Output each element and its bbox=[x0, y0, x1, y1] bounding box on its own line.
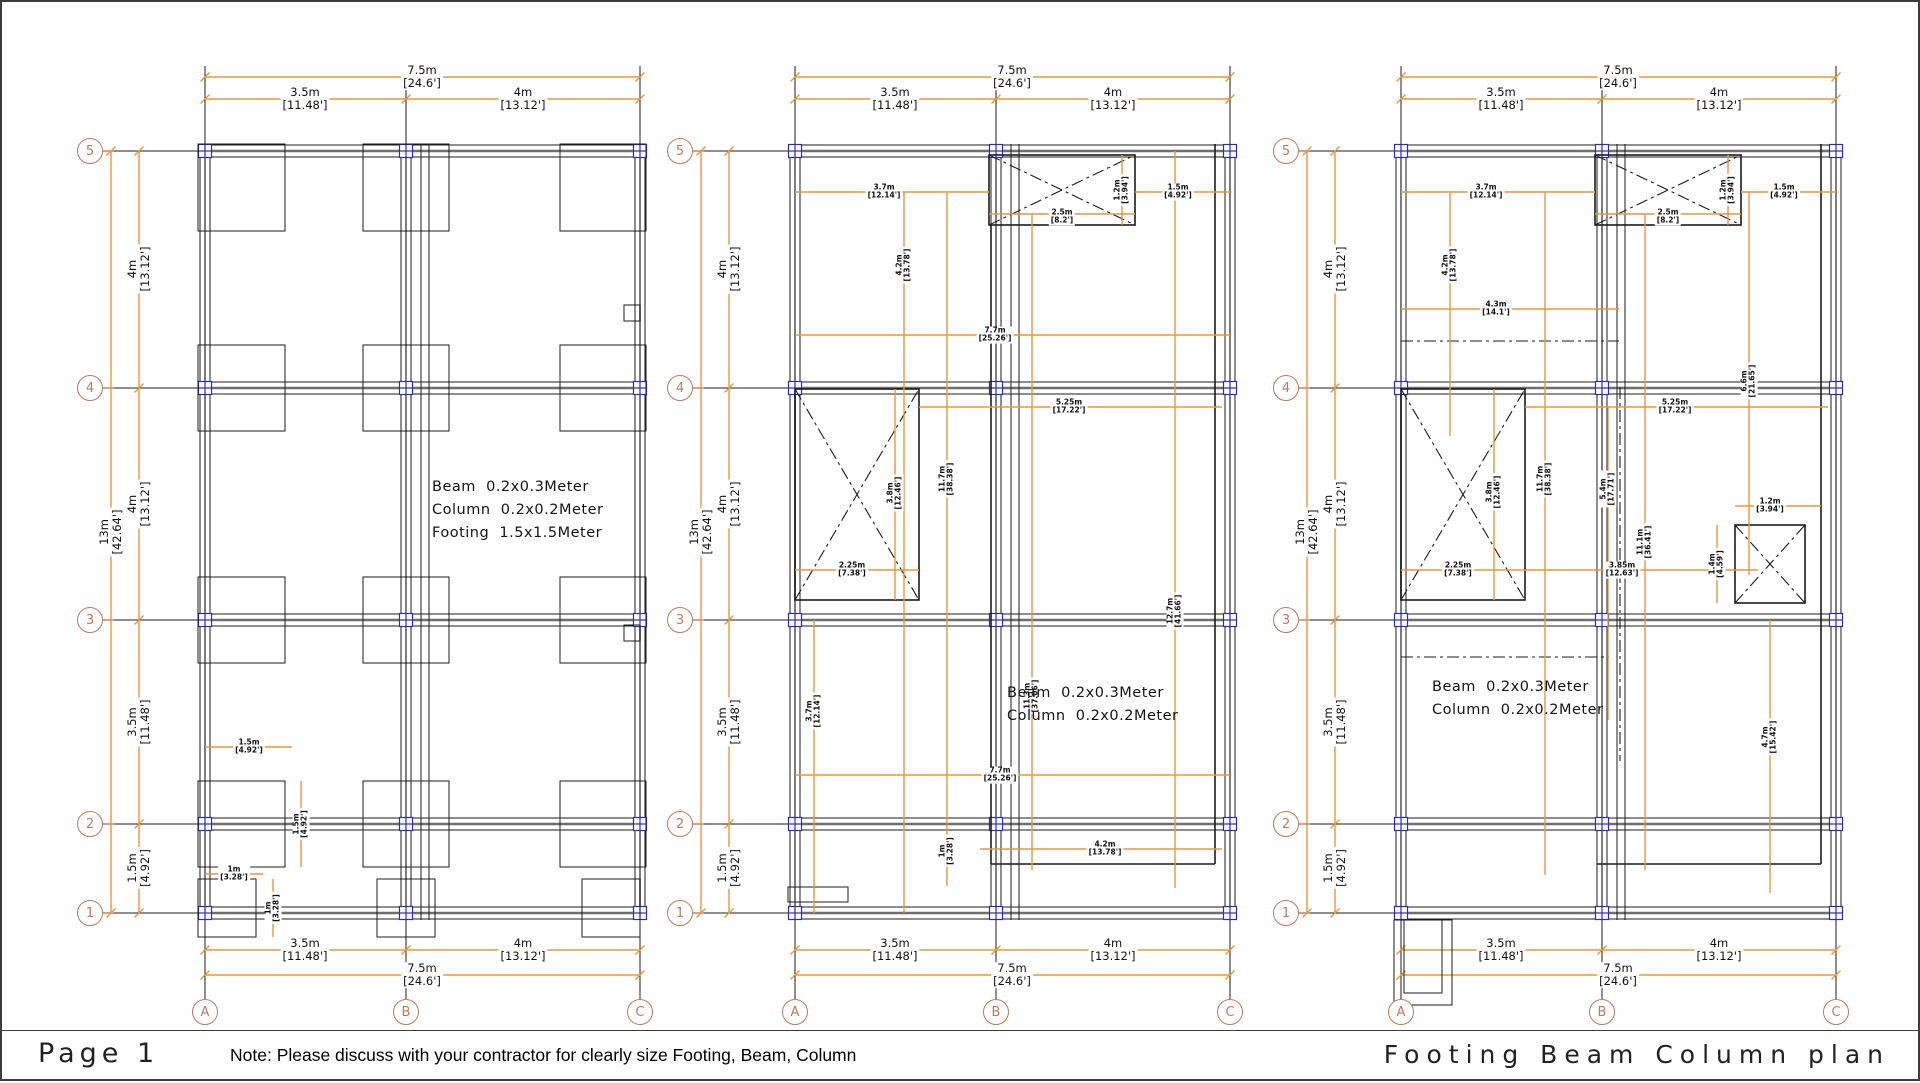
small-opening-x bbox=[1735, 525, 1805, 603]
dimension-label: 4.2m[13.78'] bbox=[896, 247, 913, 284]
grid-bubble-row-3: 3 bbox=[667, 607, 693, 633]
beam-plan-1-linework bbox=[691, 66, 1237, 1000]
dimension-label: 3.7m[12.14'] bbox=[1468, 184, 1505, 201]
dimension-label: 7.7m[25.26'] bbox=[982, 767, 1019, 784]
dimension-label: 4.3m[14.1'] bbox=[1480, 301, 1512, 318]
dimension-label: 4m[13.12'] bbox=[716, 244, 742, 293]
dimension-label: 1.2m[3.94'] bbox=[1754, 498, 1786, 515]
grid-bubble-row-4: 4 bbox=[667, 375, 693, 401]
dimension-label: 4m[13.12'] bbox=[498, 86, 547, 112]
grid-bubble-row-2: 2 bbox=[667, 811, 693, 837]
grid-bubble-col-b: B bbox=[1589, 999, 1615, 1025]
grid-bubble-col-a: A bbox=[192, 999, 218, 1025]
dimension-label: 3.8m[12.46'] bbox=[887, 475, 904, 512]
dimension-label: 3.5m[11.48'] bbox=[1476, 937, 1525, 963]
dimension-label: 3.7m[12.14'] bbox=[866, 184, 903, 201]
dimension-label: 1.5m[4.92'] bbox=[716, 847, 742, 889]
dimension-label: 4m[13.12'] bbox=[498, 937, 547, 963]
contractor-note: Note: Please discuss with your contracto… bbox=[230, 1045, 856, 1066]
dimension-label: 4m[13.12'] bbox=[1694, 86, 1743, 112]
dimension-label: 4.7m[15.42'] bbox=[1762, 719, 1779, 756]
plan-linework bbox=[2, 2, 1920, 1083]
page-number: Page 1 bbox=[38, 1038, 159, 1069]
size-note: Beam 0.2x0.3Meter Column 0.2x0.2Meter bbox=[1007, 682, 1178, 728]
grid-bubble-col-c: C bbox=[627, 999, 653, 1025]
dimension-label: 3.5m[11.48'] bbox=[870, 937, 919, 963]
grid-bubble-row-4: 4 bbox=[77, 375, 103, 401]
dimension-label: 1.5m[4.92'] bbox=[233, 739, 265, 756]
drawing-sheet: 5 4 3 2 1 A B C 7.5m[24.6'] 3.5m[11.48']… bbox=[0, 0, 1920, 1081]
dimension-label: 12.7m[41.66'] bbox=[1167, 593, 1184, 630]
grid-bubble-col-a: A bbox=[782, 999, 808, 1025]
grid-bubble-row-3: 3 bbox=[77, 607, 103, 633]
size-note: Beam 0.2x0.3Meter Column 0.2x0.2Meter Fo… bbox=[432, 476, 603, 545]
beam-plan-2-linework bbox=[1297, 66, 1843, 1005]
grid-bubble-col-b: B bbox=[983, 999, 1009, 1025]
dimension-label: 3.7m[12.14'] bbox=[806, 693, 823, 730]
dimension-label: 1.2m[3.94'] bbox=[1114, 174, 1131, 206]
dimension-label: 7.5m[24.6'] bbox=[1597, 962, 1639, 988]
dimension-label: 11.7m[38.38'] bbox=[939, 461, 956, 498]
dimension-label: 4.2m[13.78'] bbox=[1442, 247, 1459, 284]
grid-bubble-row-2: 2 bbox=[1273, 811, 1299, 837]
dimension-label: 2.25m[7.38'] bbox=[1442, 562, 1474, 579]
dimension-label: 3.5m[11.48'] bbox=[716, 697, 742, 746]
dimension-label: 3.5m[11.48'] bbox=[1476, 86, 1525, 112]
dimension-label: 5.25m[17.22'] bbox=[1657, 399, 1694, 416]
grid-bubble-row-1: 1 bbox=[1273, 900, 1299, 926]
dimension-label: 6.6m[21.65'] bbox=[1741, 363, 1758, 400]
dimension-label: 1m[3.28'] bbox=[939, 835, 956, 867]
size-note: Beam 0.2x0.3Meter Column 0.2x0.2Meter bbox=[1432, 676, 1603, 722]
dimension-label: 4m[13.12'] bbox=[1694, 937, 1743, 963]
dimension-label: 7.5m[24.6'] bbox=[1597, 64, 1639, 90]
grid-bubble-row-1: 1 bbox=[77, 900, 103, 926]
dimension-label: 1.5m[4.92'] bbox=[293, 808, 310, 840]
dimension-label: 13m[42.64'] bbox=[98, 507, 124, 556]
dimension-label: 3.5m[11.48'] bbox=[1322, 697, 1348, 746]
dimension-label: 2.5m[8.2'] bbox=[1655, 209, 1681, 226]
grid-bubble-row-5: 5 bbox=[1273, 138, 1299, 164]
dimension-label: 7.5m[24.6'] bbox=[401, 64, 443, 90]
grid-bubble-row-5: 5 bbox=[667, 138, 693, 164]
dimension-label: 13m[42.64'] bbox=[688, 507, 714, 556]
dimension-label: 1m[3.28'] bbox=[218, 866, 250, 883]
dimension-label: 4m[13.12'] bbox=[126, 244, 152, 293]
grid-bubble-row-5: 5 bbox=[77, 138, 103, 164]
dimension-label: 3.8m[12.46'] bbox=[1486, 474, 1503, 511]
grid-bubble-row-1: 1 bbox=[667, 900, 693, 926]
dimension-label: 3.5m[11.48'] bbox=[280, 86, 329, 112]
dimension-label: 3.85m[12.63'] bbox=[1604, 562, 1641, 579]
dimension-label: 1.5m[4.92'] bbox=[126, 847, 152, 889]
grid-bubble-col-a: A bbox=[1388, 999, 1414, 1025]
dimension-label: 7.5m[24.6'] bbox=[991, 64, 1033, 90]
dimension-label: 4.2m[13.78'] bbox=[1087, 841, 1124, 858]
grid-bubble-row-3: 3 bbox=[1273, 607, 1299, 633]
dimension-label: 7.5m[24.6'] bbox=[991, 962, 1033, 988]
dimension-label: 11.7m[38.38'] bbox=[1537, 461, 1554, 498]
dimension-label: 3.5m[11.48'] bbox=[126, 697, 152, 746]
drawing-title: Footing Beam Column plan bbox=[1384, 1040, 1890, 1069]
dimension-label: 1.2m[3.94'] bbox=[1720, 174, 1737, 206]
dimension-label: 3.5m[11.48'] bbox=[280, 937, 329, 963]
dimension-label: 2.5m[8.2'] bbox=[1049, 209, 1075, 226]
dimension-label: 1.5m[4.92'] bbox=[1162, 184, 1194, 201]
dimension-label: 4m[13.12'] bbox=[126, 479, 152, 528]
dimension-label: 5.4m[17.71'] bbox=[1600, 471, 1617, 508]
grid-bubble-row-2: 2 bbox=[77, 811, 103, 837]
footer-divider bbox=[2, 1030, 1920, 1031]
dimension-label: 2.25m[7.38'] bbox=[836, 562, 868, 579]
grid-bubble-col-b: B bbox=[393, 999, 419, 1025]
dimension-label: 4m[13.12'] bbox=[1088, 937, 1137, 963]
dimension-label: 1.5m[4.92'] bbox=[1768, 184, 1800, 201]
dimension-label: 1.4m[4.59'] bbox=[1709, 548, 1726, 580]
dimension-label: 11.1m[36.41'] bbox=[1637, 524, 1654, 561]
grid-bubble-col-c: C bbox=[1217, 999, 1243, 1025]
dimension-label: 5.25m[17.22'] bbox=[1051, 399, 1088, 416]
dimension-label: 13m[42.64'] bbox=[1294, 507, 1320, 556]
grid-bubble-col-c: C bbox=[1823, 999, 1849, 1025]
dimension-label: 4m[13.12'] bbox=[1322, 244, 1348, 293]
dimension-label: 1.5m[4.92'] bbox=[1322, 847, 1348, 889]
grid-bubble-row-4: 4 bbox=[1273, 375, 1299, 401]
dimension-label: 4m[13.12'] bbox=[1088, 86, 1137, 112]
dimension-label: 4m[13.12'] bbox=[716, 479, 742, 528]
dimension-label: 7.7m[25.26'] bbox=[977, 327, 1014, 344]
dimension-label: 7.5m[24.6'] bbox=[401, 962, 443, 988]
dimension-label: 3.5m[11.48'] bbox=[870, 86, 919, 112]
dimension-label: 4m[13.12'] bbox=[1322, 479, 1348, 528]
dimension-label: 1m[3.28'] bbox=[265, 892, 282, 924]
